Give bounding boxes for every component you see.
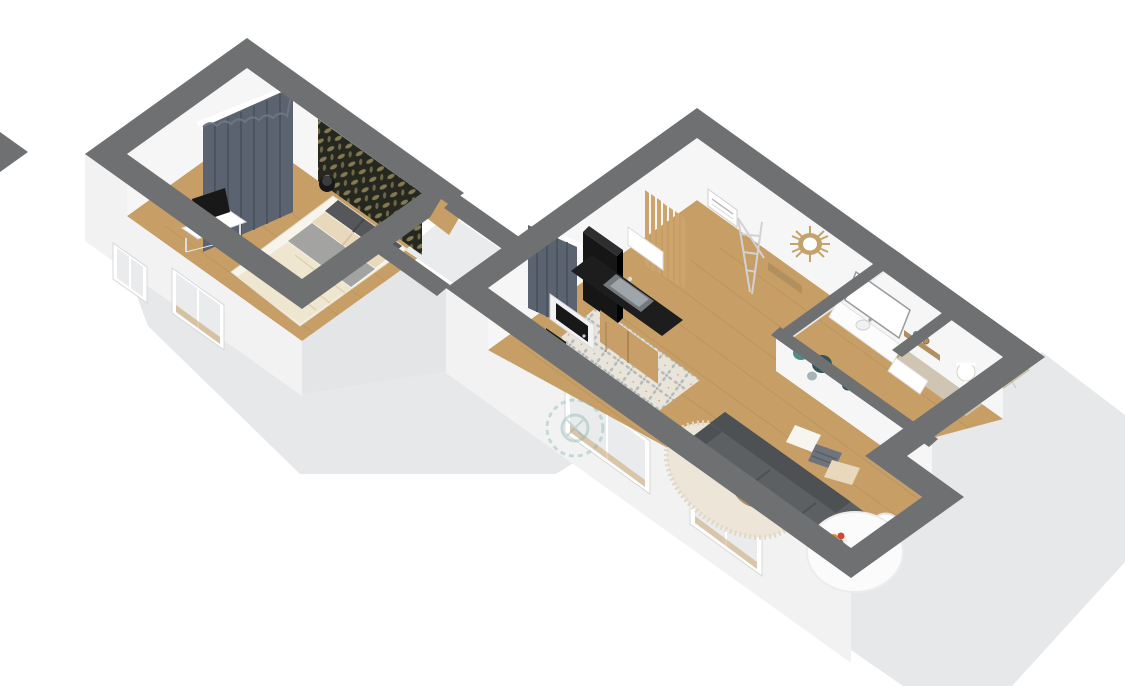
bedside-lamp: [319, 176, 335, 192]
floorplan-canvas[interactable]: [0, 0, 1125, 686]
floorplan-3d-render: [0, 0, 1125, 686]
wall-fragment-left-edge: [0, 132, 28, 172]
sunburst-mirror: [790, 226, 830, 262]
